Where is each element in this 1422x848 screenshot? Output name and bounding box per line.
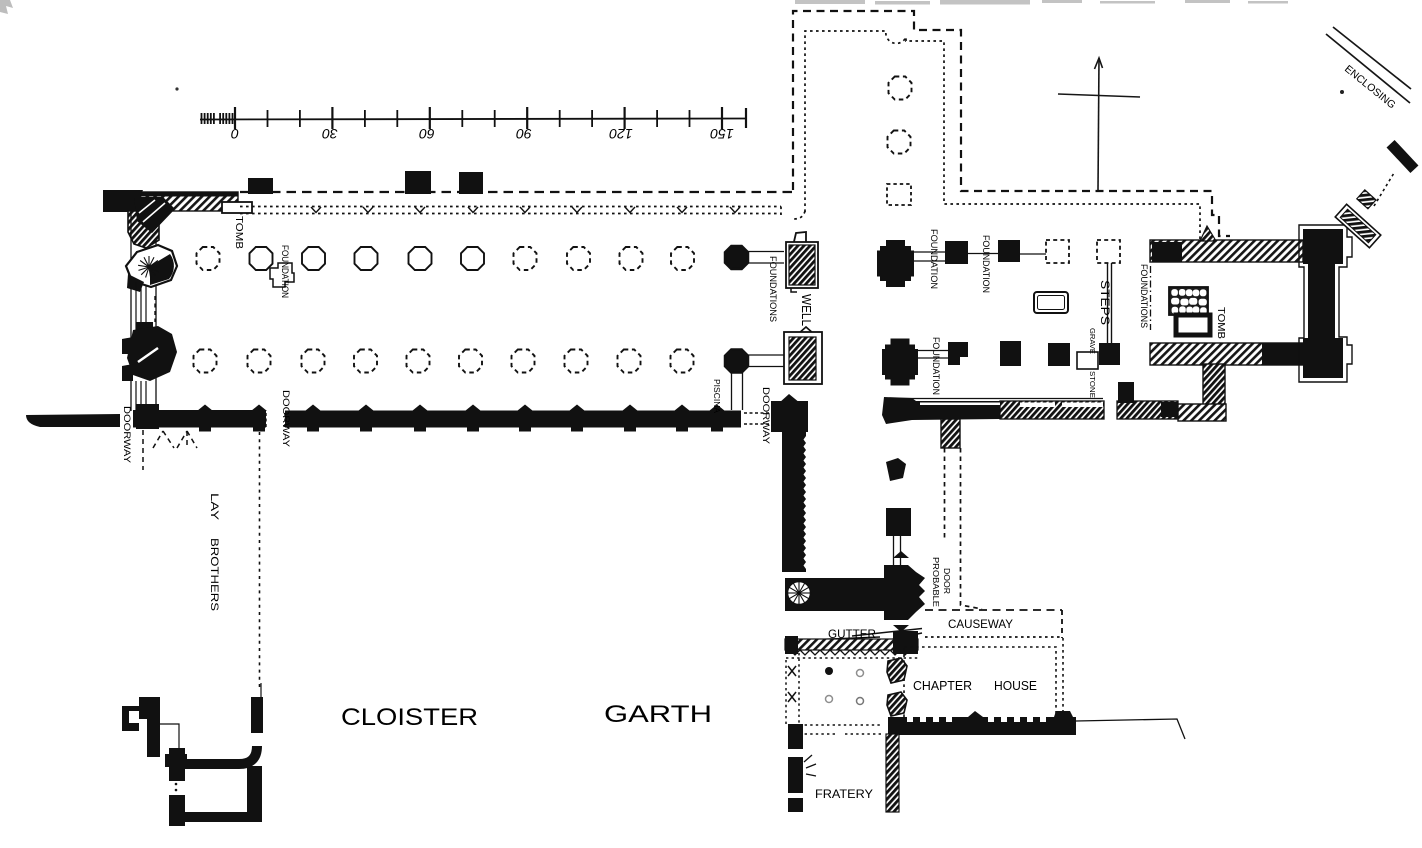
svg-text:DOOR: DOOR: [942, 568, 952, 594]
svg-text:0: 0: [231, 126, 239, 142]
svg-text:PISCINA: PISCINA: [712, 379, 722, 413]
svg-text:DOORWAY: DOORWAY: [121, 406, 132, 464]
svg-text:FOUNDATION: FOUNDATION: [929, 229, 939, 289]
svg-text:CAUSEWAY: CAUSEWAY: [948, 617, 1013, 631]
svg-text:TOMB: TOMB: [233, 216, 245, 249]
svg-text:GARTH: GARTH: [604, 701, 712, 728]
svg-text:90: 90: [516, 126, 532, 142]
svg-text:FOUNDATIONS: FOUNDATIONS: [768, 256, 778, 322]
svg-text:BROTHERS: BROTHERS: [208, 538, 220, 611]
svg-text:GRAVE: GRAVE: [1088, 328, 1097, 354]
svg-text:FOUNDATION: FOUNDATION: [981, 235, 991, 293]
svg-text:FOUNDATION: FOUNDATION: [280, 245, 290, 298]
svg-text:150: 150: [710, 126, 734, 142]
svg-text:DOORWAY: DOORWAY: [280, 390, 291, 448]
svg-text:120: 120: [609, 126, 633, 142]
svg-text:FOUNDATION: FOUNDATION: [931, 337, 941, 395]
svg-text:FOUNDATIONS: FOUNDATIONS: [1139, 264, 1149, 328]
svg-text:HOUSE: HOUSE: [994, 679, 1037, 693]
svg-text:PROBABLE: PROBABLE: [931, 557, 941, 607]
svg-text:CLOISTER: CLOISTER: [341, 704, 478, 731]
svg-text:TOMB: TOMB: [1215, 307, 1227, 339]
svg-text:LAY: LAY: [208, 493, 220, 521]
svg-text:STEPS: STEPS: [1098, 280, 1112, 325]
svg-text:DOORWAY: DOORWAY: [760, 387, 771, 445]
svg-text:CHAPTER: CHAPTER: [913, 679, 972, 693]
svg-text:FRATERY: FRATERY: [815, 787, 873, 801]
svg-text:60: 60: [419, 126, 435, 142]
svg-text:30: 30: [322, 126, 338, 142]
svg-text:WELL: WELL: [799, 294, 814, 326]
svg-text:STONE: STONE: [1088, 371, 1097, 398]
